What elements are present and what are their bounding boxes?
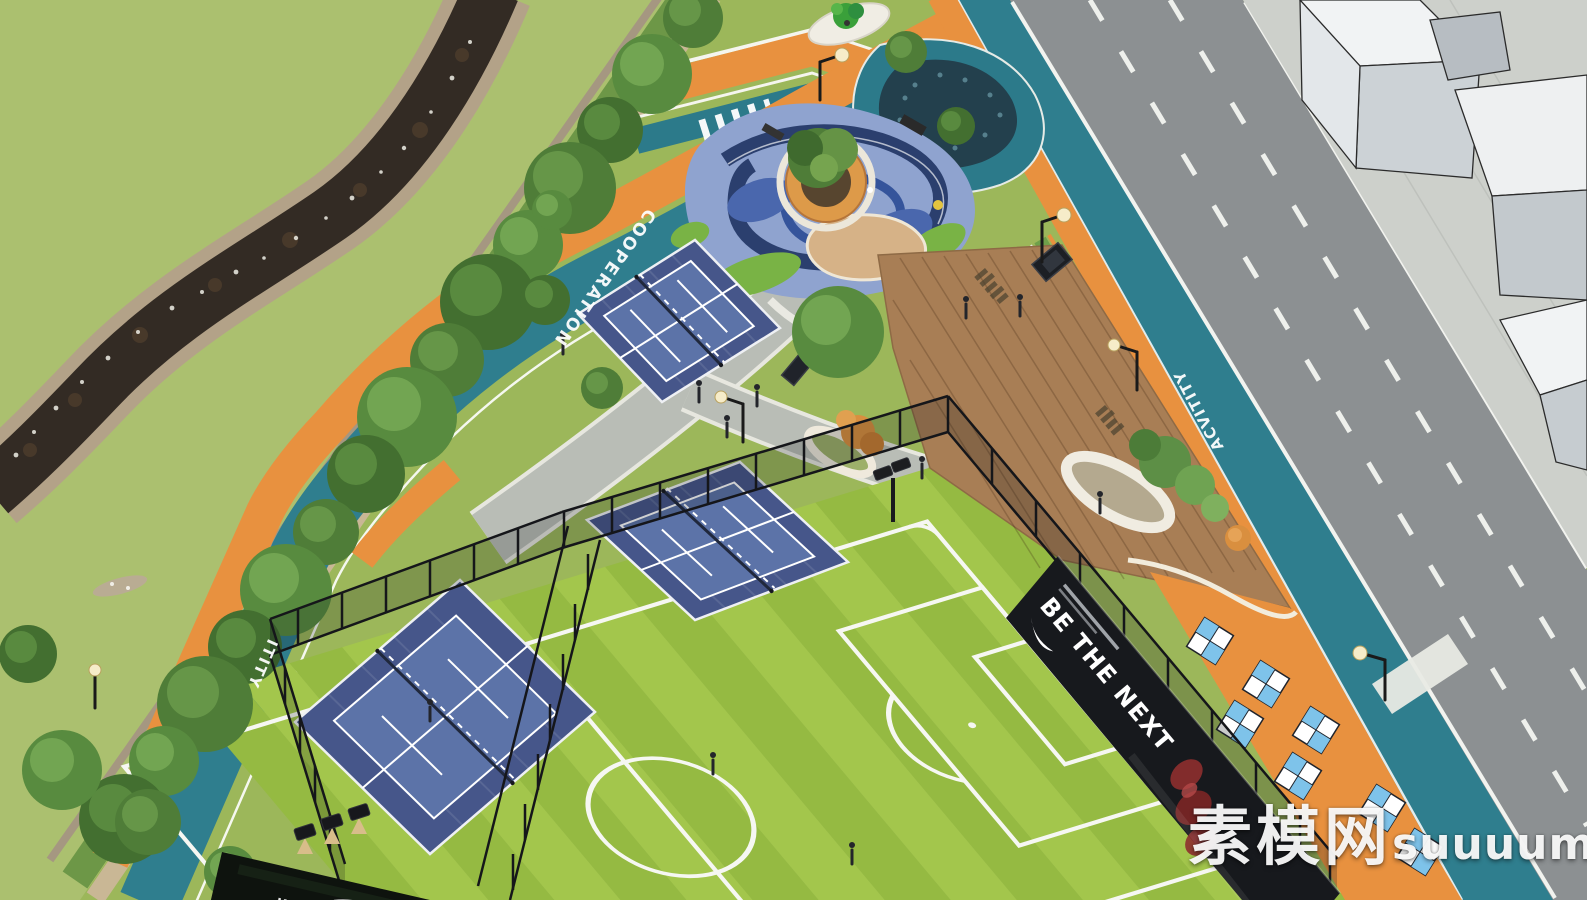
tree <box>937 107 975 145</box>
scene-canvas: BE THE NEXT WAYNE <box>0 0 1587 900</box>
tree <box>22 730 102 810</box>
tree <box>0 625 57 683</box>
tree <box>115 789 181 855</box>
tree <box>885 31 927 73</box>
park-aerial-render: BE THE NEXT WAYNE <box>0 0 1587 900</box>
play-equipment <box>933 200 943 210</box>
tree <box>792 286 884 378</box>
autumn-tree <box>1225 525 1251 551</box>
tree <box>327 435 405 513</box>
tree <box>532 190 572 230</box>
tree <box>581 367 623 409</box>
tree <box>520 275 570 325</box>
